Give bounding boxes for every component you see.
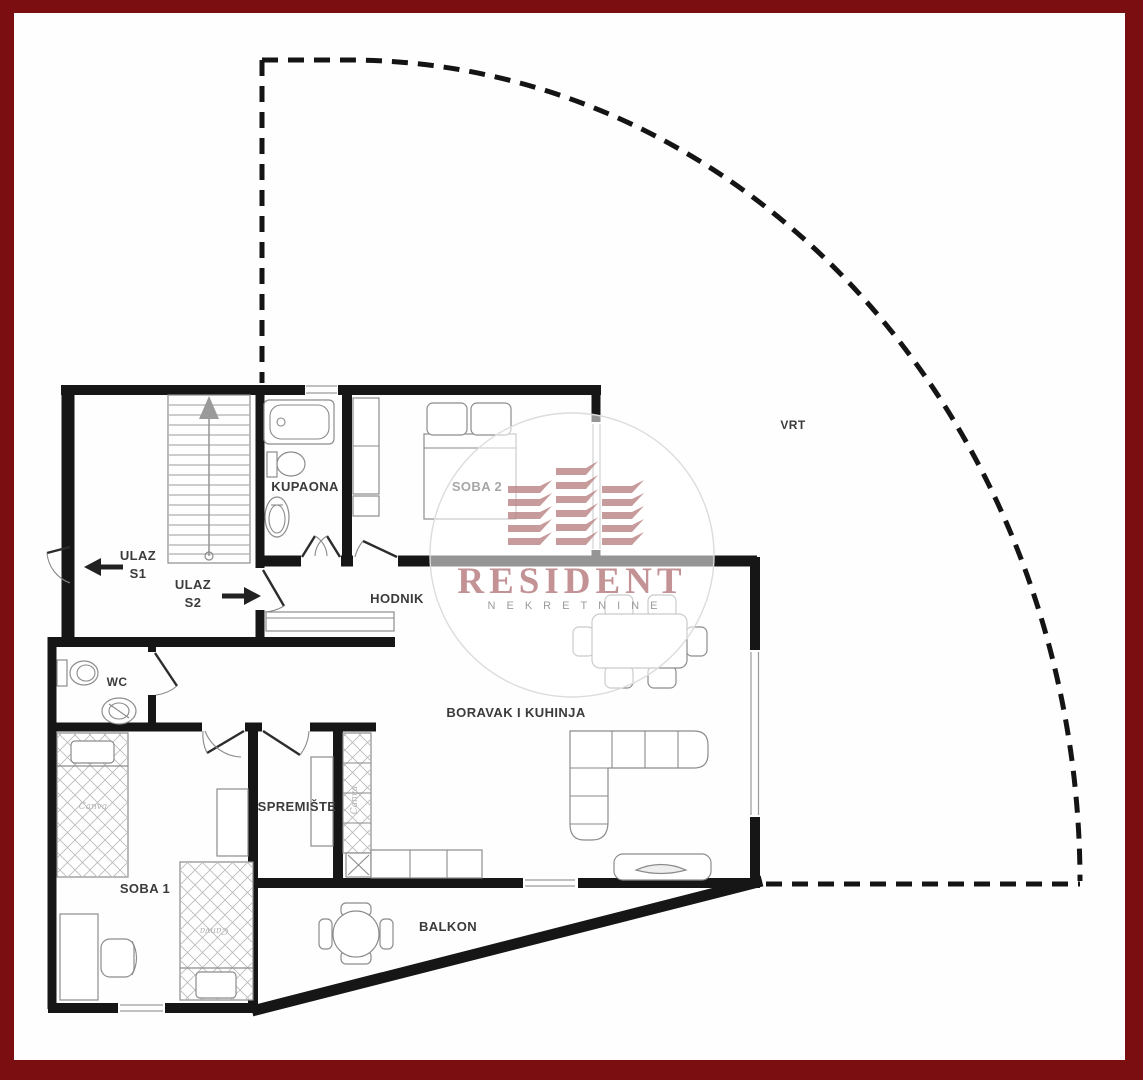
dresser-icon	[217, 789, 248, 856]
tv-console-icon	[614, 854, 711, 880]
desk-icon	[60, 914, 98, 1000]
vendor-watermark: Canva	[200, 925, 229, 935]
desk-chair-icon	[101, 939, 137, 977]
pillow-icon	[71, 741, 114, 763]
wc-toilet-icon	[57, 660, 98, 686]
brand-name: RESIDENT	[457, 561, 686, 602]
svg-text:ULAZ: ULAZ	[175, 577, 211, 592]
label-wc: WC	[107, 675, 128, 689]
hallway-closet	[266, 612, 394, 631]
floor-plan-page: Canva Canva Canva	[0, 0, 1143, 1080]
floor-plan-canvas: Canva Canva Canva	[0, 0, 1143, 1080]
brand-tagline: NEKRETNINE	[488, 600, 669, 612]
svg-text:S1: S1	[130, 566, 147, 581]
vendor-watermark: Canva	[79, 802, 108, 812]
label-hodnik: HODNIK	[370, 591, 424, 606]
agency-watermark: RESIDENT NEKRETNINE	[430, 413, 714, 697]
label-boravak: BORAVAK I KUHINJA	[446, 705, 585, 720]
single-bed-icon: Canva	[180, 862, 253, 1000]
wc-sink-icon	[102, 698, 136, 724]
single-bed-icon: Canva	[57, 733, 128, 877]
svg-text:ULAZ: ULAZ	[120, 548, 156, 563]
label-kupaona: KUPAONA	[271, 479, 339, 494]
toilet-icon	[267, 452, 305, 477]
round-table-icon	[333, 911, 379, 957]
label-vrt: VRT	[780, 418, 805, 432]
stove-icon	[346, 853, 371, 877]
bathroom-sink-icon	[265, 497, 289, 537]
label-spremiste: SPREMIŠTE	[258, 799, 337, 814]
label-soba1: SOBA 1	[120, 881, 170, 896]
label-balkon: BALKON	[419, 919, 477, 934]
vendor-watermark: Canva	[350, 786, 360, 815]
pillow-icon	[427, 403, 467, 435]
kitchen-counter-icon	[371, 850, 482, 878]
pillow-icon	[196, 972, 236, 998]
svg-text:S2: S2	[185, 595, 202, 610]
